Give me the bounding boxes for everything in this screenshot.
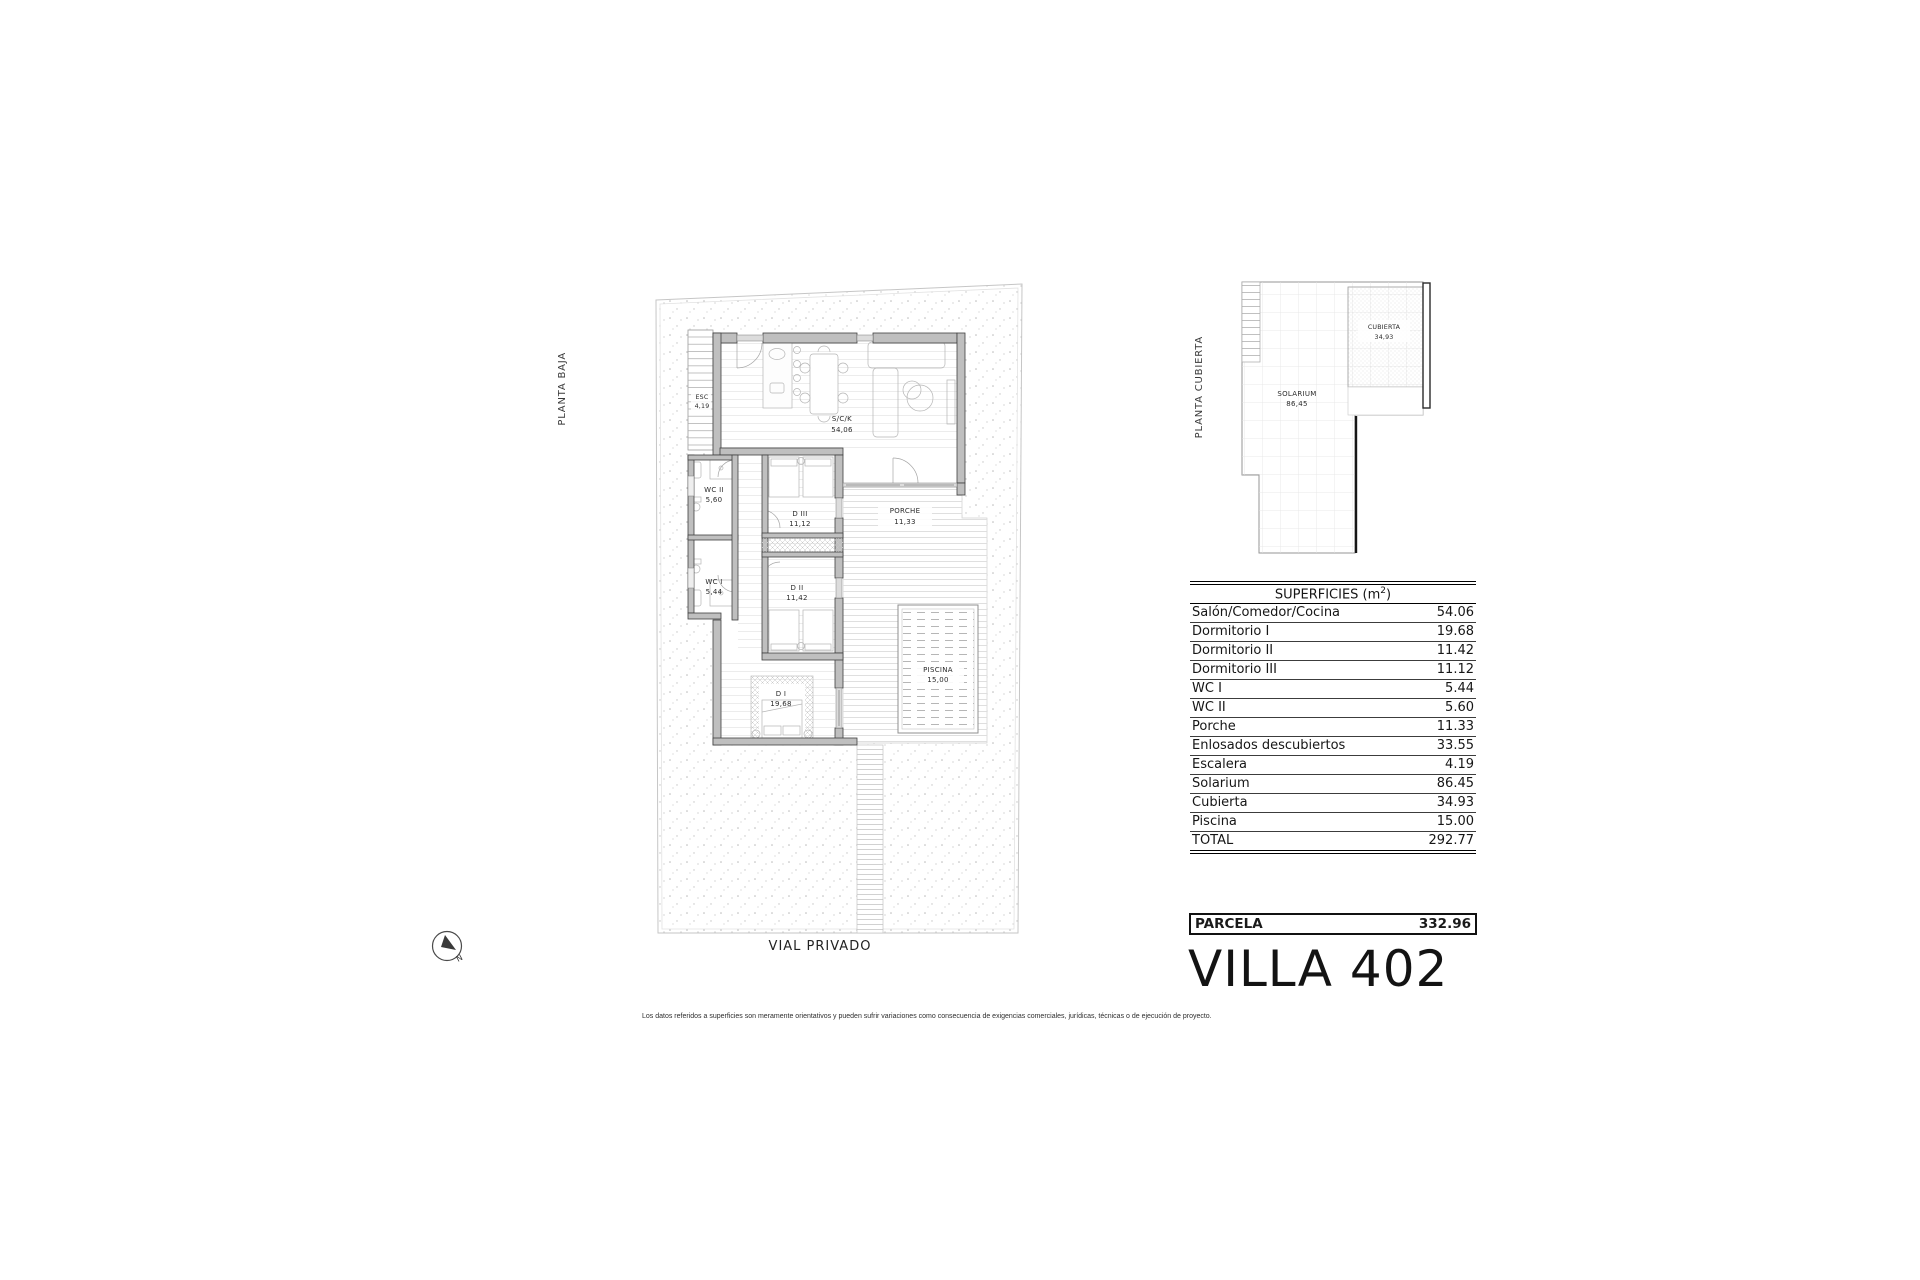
row-value: 54.06	[1408, 604, 1476, 623]
table-row: Dormitorio I19.68	[1190, 623, 1476, 642]
wardrobe-hatch	[762, 538, 843, 552]
disclaimer-text: Los datos referidos a superficies son me…	[642, 1013, 1158, 1020]
table-title: SUPERFICIES (m2)	[1190, 585, 1476, 604]
svg-text:5,60: 5,60	[706, 496, 723, 504]
svg-text:PORCHE: PORCHE	[890, 507, 921, 515]
surfaces-table: SUPERFICIES (m2) Salón/Comedor/Cocina54.…	[1190, 584, 1476, 851]
table-row: Escalera4.19	[1190, 756, 1476, 775]
street-label: VIAL PRIVADO	[630, 939, 1010, 954]
svg-text:4,19: 4,19	[695, 403, 710, 410]
row-value: 19.68	[1408, 623, 1476, 642]
svg-text:15,00: 15,00	[927, 676, 949, 684]
table-row: Salón/Comedor/Cocina54.06	[1190, 604, 1476, 623]
svg-text:S/C/K: S/C/K	[832, 415, 852, 423]
table-row: WC II5.60	[1190, 699, 1476, 718]
table-row: Dormitorio II11.42	[1190, 642, 1476, 661]
svg-text:86,45: 86,45	[1286, 400, 1308, 408]
svg-text:19,68: 19,68	[770, 700, 792, 708]
north-arrow-icon: N	[425, 925, 480, 980]
table-row: Dormitorio III11.12	[1190, 661, 1476, 680]
room-label-porche: PORCHE 11,33	[878, 504, 932, 526]
room-label-cubierta: CUBIERTA 34,93	[1358, 320, 1410, 342]
row-label: Escalera	[1190, 756, 1408, 775]
row-label: WC I	[1190, 680, 1408, 699]
row-value: 5.44	[1408, 680, 1476, 699]
row-label: Porche	[1190, 718, 1408, 737]
svg-text:54,06: 54,06	[831, 426, 853, 434]
table-row: WC I5.44	[1190, 680, 1476, 699]
svg-text:WC I: WC I	[705, 578, 722, 586]
svg-text:PISCINA: PISCINA	[923, 666, 953, 674]
row-label: Piscina	[1190, 813, 1408, 832]
svg-text:CUBIERTA: CUBIERTA	[1368, 324, 1401, 331]
row-label: Solarium	[1190, 775, 1408, 794]
row-label: Salón/Comedor/Cocina	[1190, 604, 1408, 623]
walkway	[857, 745, 883, 933]
row-label: TOTAL	[1190, 832, 1408, 851]
villa-title: VILLA 402	[1188, 940, 1478, 998]
row-label: Dormitorio II	[1190, 642, 1408, 661]
row-value: 34.93	[1408, 794, 1476, 813]
row-value: 86.45	[1408, 775, 1476, 794]
table-header-row: SUPERFICIES (m2)	[1190, 585, 1476, 604]
roof-plan-svg: CUBIERTA 34,93 SOLARIUM 86,45	[1190, 258, 1452, 560]
svg-text:11,12: 11,12	[789, 520, 811, 528]
table-row: Solarium86.45	[1190, 775, 1476, 794]
floor-plan-svg: ESC 4,19 S/C/K 54,06 WC II 5,60 D III 11…	[650, 280, 1030, 950]
row-label: Dormitorio III	[1190, 661, 1408, 680]
svg-text:WC II: WC II	[704, 486, 724, 494]
stairs-esc	[688, 330, 713, 450]
table-row: Porche11.33	[1190, 718, 1476, 737]
roof-stairs	[1242, 282, 1260, 362]
planta-baja-label: PLANTA BAJA	[557, 352, 568, 426]
parapet-bar	[1423, 283, 1430, 408]
table-row: Piscina15.00	[1190, 813, 1476, 832]
svg-text:SOLARIUM: SOLARIUM	[1277, 390, 1316, 398]
room-label-piscina: PISCINA 15,00	[912, 663, 964, 684]
svg-text:ESC: ESC	[696, 394, 709, 401]
row-value: 33.55	[1408, 737, 1476, 756]
svg-text:D III: D III	[792, 510, 807, 518]
row-label: Dormitorio I	[1190, 623, 1408, 642]
row-value: 15.00	[1408, 813, 1476, 832]
parcela-label: PARCELA	[1195, 916, 1263, 932]
svg-text:34,93: 34,93	[1374, 334, 1393, 341]
table-row: Cubierta34.93	[1190, 794, 1476, 813]
row-label: Cubierta	[1190, 794, 1408, 813]
row-value: 11.12	[1408, 661, 1476, 680]
row-value: 4.19	[1408, 756, 1476, 775]
table-row-total: TOTAL292.77	[1190, 832, 1476, 851]
row-value: 11.42	[1408, 642, 1476, 661]
svg-text:11,42: 11,42	[786, 594, 808, 602]
surfaces-table-wrap: SUPERFICIES (m2) Salón/Comedor/Cocina54.…	[1190, 581, 1476, 854]
north-letter: N	[455, 953, 465, 964]
row-value: 11.33	[1408, 718, 1476, 737]
row-label: Enlosados descubiertos	[1190, 737, 1408, 756]
row-value: 292.77	[1408, 832, 1476, 851]
svg-text:11,33: 11,33	[894, 518, 916, 526]
parcela-box: PARCELA 332.96	[1189, 913, 1477, 935]
parcela-value: 332.96	[1419, 916, 1471, 932]
table-row: Enlosados descubiertos33.55	[1190, 737, 1476, 756]
svg-text:D I: D I	[776, 690, 787, 698]
svg-text:5,44: 5,44	[706, 588, 723, 596]
row-label: WC II	[1190, 699, 1408, 718]
svg-text:D II: D II	[791, 584, 804, 592]
row-value: 5.60	[1408, 699, 1476, 718]
